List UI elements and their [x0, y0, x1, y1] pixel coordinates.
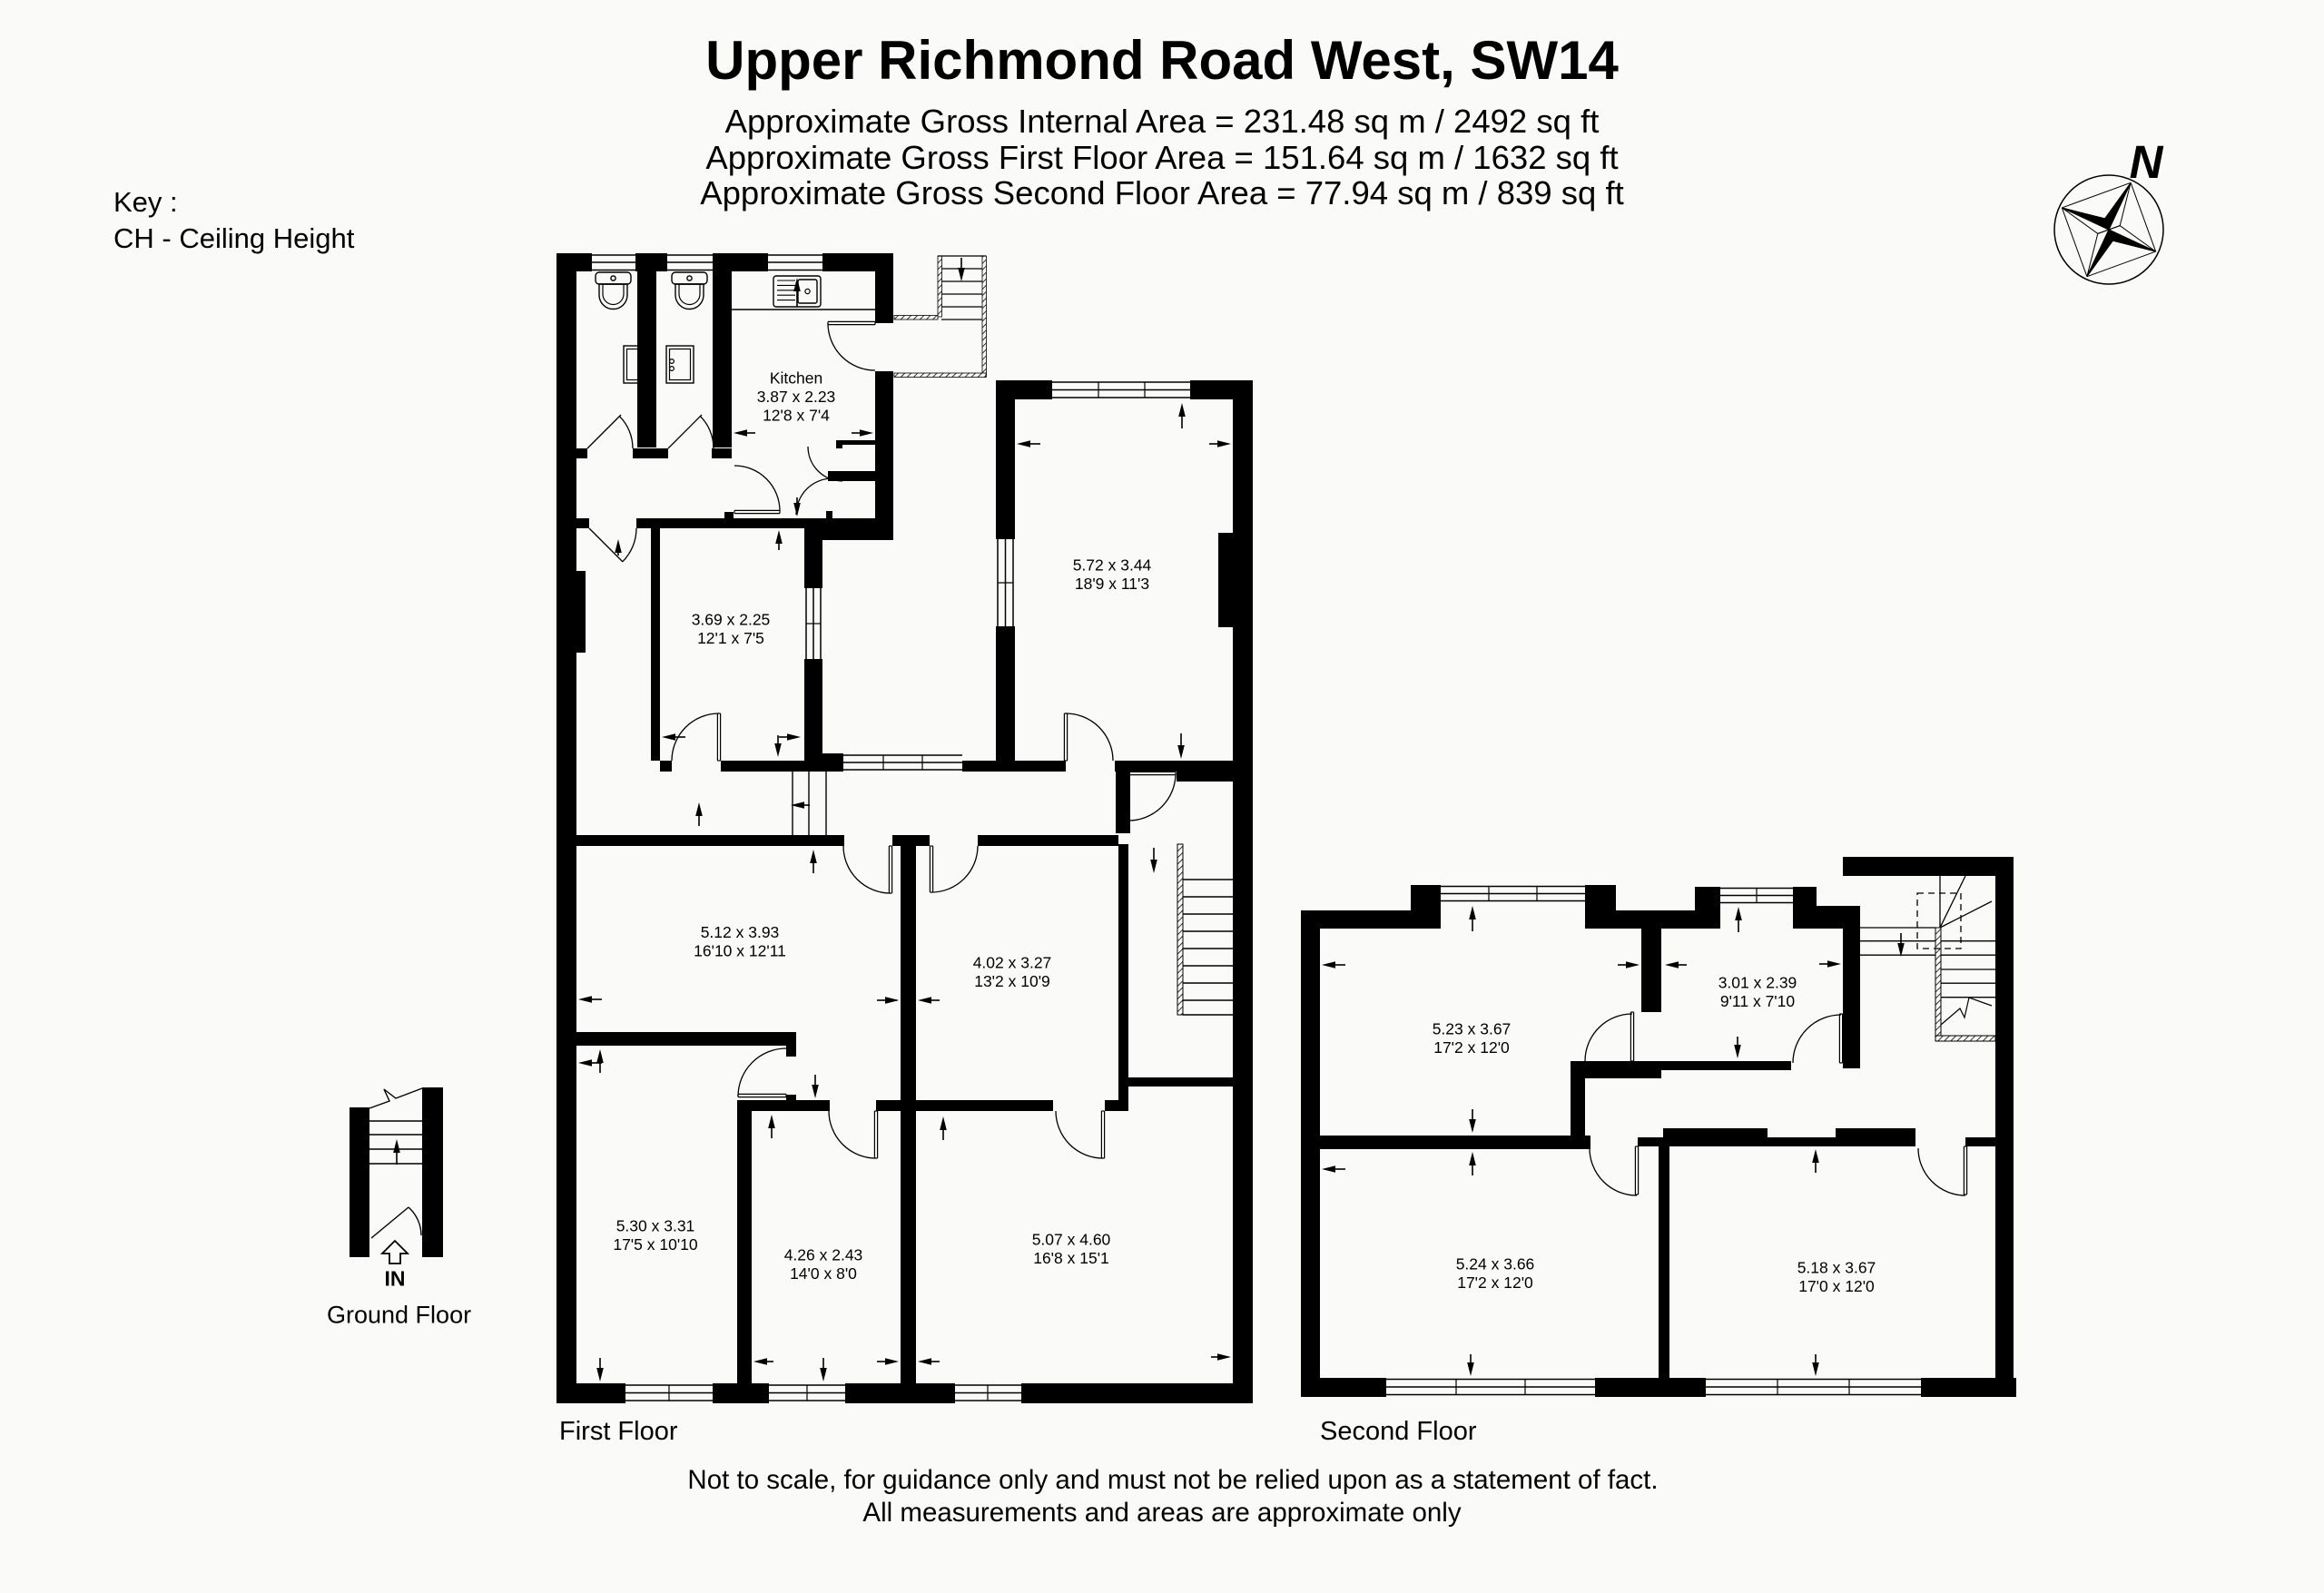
svg-text:5.18 x 3.67: 5.18 x 3.67	[1797, 1258, 1876, 1276]
svg-text:16'10 x 12'11: 16'10 x 12'11	[694, 942, 786, 960]
svg-text:5.07 x 4.60: 5.07 x 4.60	[1032, 1230, 1111, 1248]
svg-text:12'1 x 7'5: 12'1 x 7'5	[697, 629, 764, 647]
svg-text:5.30 x 3.31: 5.30 x 3.31	[616, 1216, 695, 1234]
svg-text:4.26 x 2.43: 4.26 x 2.43	[784, 1245, 863, 1264]
svg-text:5.23 x 3.67: 5.23 x 3.67	[1433, 1019, 1512, 1037]
svg-text:3.01 x 2.39: 3.01 x 2.39	[1718, 973, 1797, 991]
svg-text:Key :: Key :	[113, 186, 178, 218]
svg-text:12'8 x 7'4: 12'8 x 7'4	[763, 407, 830, 425]
svg-text:4.02 x 3.27: 4.02 x 3.27	[973, 953, 1052, 971]
svg-text:Approximate Gross Internal Are: Approximate Gross Internal Area = 231.48…	[725, 103, 1600, 140]
svg-text:Upper Richmond Road West, SW14: Upper Richmond Road West, SW14	[705, 30, 1619, 91]
svg-text:17'0 x 12'0: 17'0 x 12'0	[1798, 1277, 1875, 1295]
svg-text:3.69 x 2.25: 3.69 x 2.25	[692, 610, 771, 628]
svg-text:CH - Ceiling Height: CH - Ceiling Height	[113, 222, 355, 254]
svg-text:14'0 x 8'0: 14'0 x 8'0	[790, 1264, 857, 1283]
svg-text:Ground Floor: Ground Floor	[327, 1302, 471, 1329]
svg-text:5.72 x 3.44: 5.72 x 3.44	[1073, 556, 1152, 574]
svg-text:17'5 x 10'10: 17'5 x 10'10	[613, 1235, 698, 1254]
svg-text:All measurements and areas are: All measurements and areas are approxima…	[862, 1498, 1461, 1528]
svg-text:5.24 x 3.66: 5.24 x 3.66	[1456, 1254, 1535, 1273]
svg-text:3.87 x 2.23: 3.87 x 2.23	[757, 388, 836, 406]
svg-text:13'2 x 10'9: 13'2 x 10'9	[974, 972, 1050, 990]
svg-text:Second Floor: Second Floor	[1320, 1417, 1477, 1446]
svg-text:17'2 x 12'0: 17'2 x 12'0	[1457, 1273, 1533, 1292]
svg-text:IN: IN	[385, 1267, 406, 1291]
svg-text:9'11 x 7'10: 9'11 x 7'10	[1720, 992, 1796, 1010]
svg-text:Not to scale, for guidance onl: Not to scale, for guidance only and must…	[687, 1465, 1658, 1495]
svg-text:Approximate Gross Second Floor: Approximate Gross Second Floor Area = 77…	[700, 174, 1623, 211]
svg-text:N: N	[2130, 136, 2164, 188]
svg-text:First Floor: First Floor	[559, 1417, 678, 1446]
svg-text:Approximate Gross First Floor: Approximate Gross First Floor Area = 151…	[705, 139, 1618, 176]
svg-text:Kitchen: Kitchen	[770, 369, 822, 387]
svg-text:5.12 x 3.93: 5.12 x 3.93	[701, 923, 780, 941]
svg-text:18'9 x 11'3: 18'9 x 11'3	[1075, 575, 1149, 593]
svg-text:16'8 x 15'1: 16'8 x 15'1	[1033, 1249, 1109, 1267]
svg-text:17'2 x 12'0: 17'2 x 12'0	[1433, 1038, 1510, 1057]
